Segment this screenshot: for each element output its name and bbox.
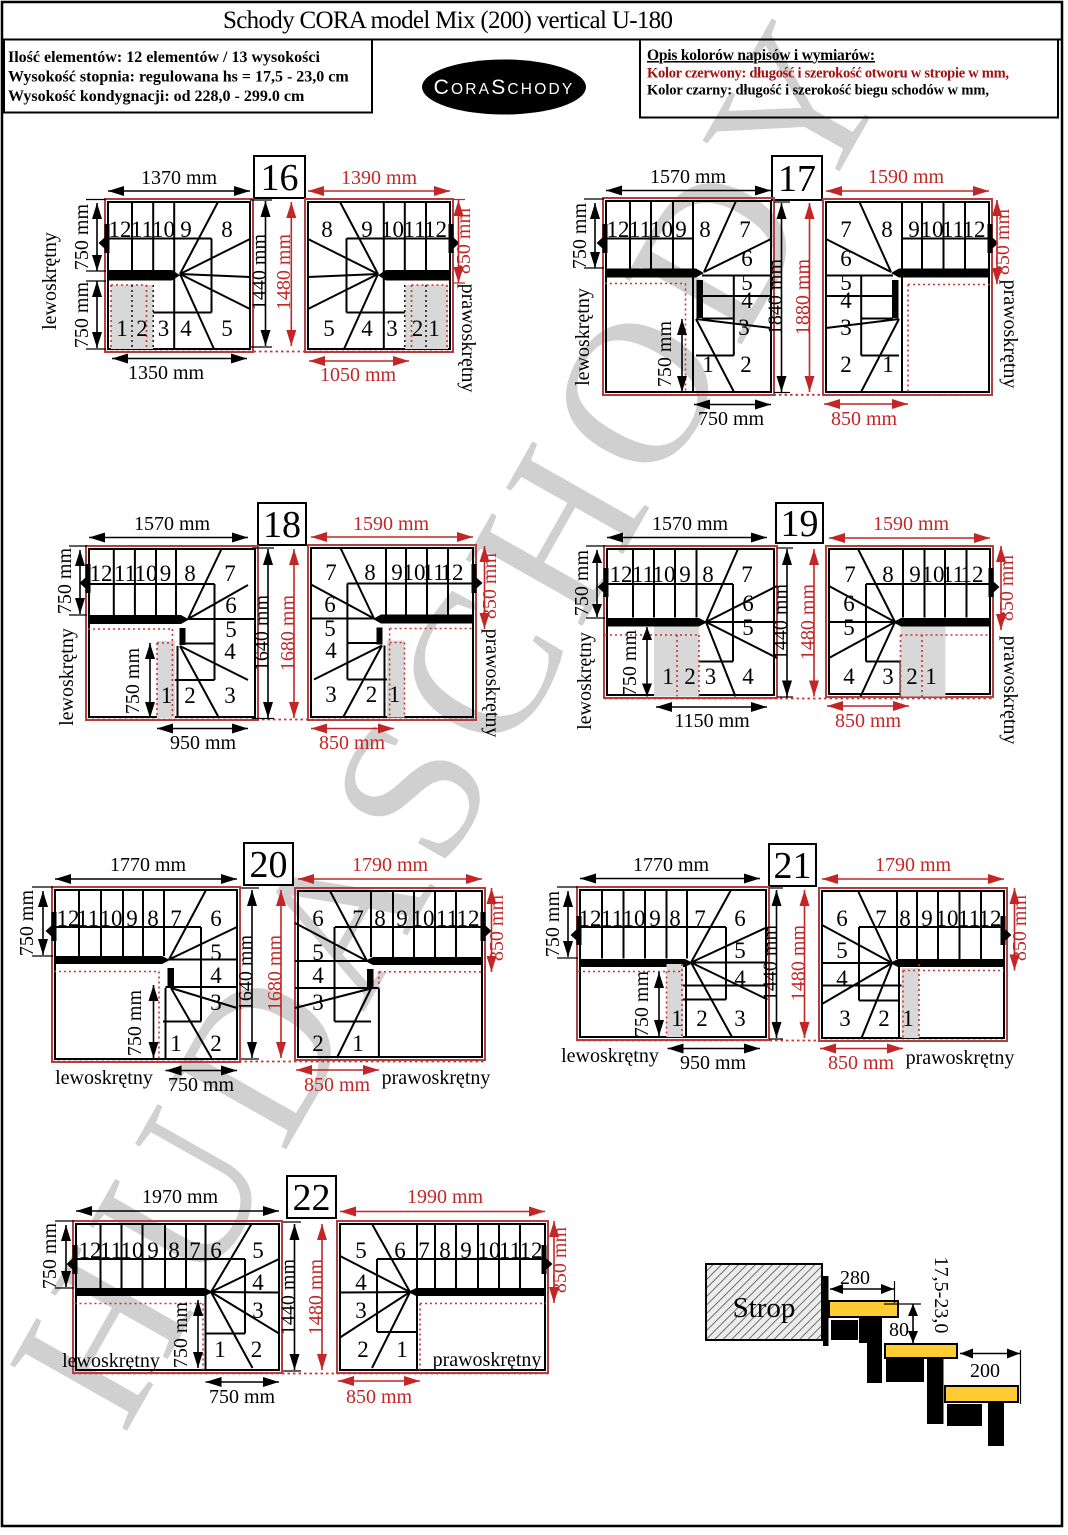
svg-text:8: 8 [168,1238,180,1263]
svg-text:8: 8 [364,560,376,585]
svg-text:2: 2 [740,352,752,377]
svg-text:lewoskrętny: lewoskrętny [56,628,78,726]
svg-text:1570 mm: 1570 mm [134,513,211,535]
svg-text:12: 12 [90,561,113,586]
svg-text:750 mm: 750 mm [170,1302,192,1369]
svg-text:12: 12 [424,217,447,242]
svg-text:1570 mm: 1570 mm [652,513,729,535]
svg-text:7: 7 [352,906,364,931]
svg-text:750 mm: 750 mm [631,971,653,1038]
svg-text:1790 mm: 1790 mm [352,854,429,876]
svg-text:11: 11 [958,906,980,931]
svg-text:750 mm: 750 mm [71,282,93,349]
svg-text:9: 9 [180,217,192,242]
svg-text:11: 11 [632,562,654,587]
svg-text:4: 4 [180,316,192,341]
svg-text:6: 6 [734,906,746,931]
svg-text:9: 9 [921,906,933,931]
svg-text:4: 4 [224,639,236,664]
svg-text:5: 5 [843,615,855,640]
svg-text:10: 10 [100,906,123,931]
svg-text:2: 2 [184,683,196,708]
svg-text:11: 11 [629,217,651,242]
svg-text:11: 11 [77,906,99,931]
svg-text:8: 8 [699,217,711,242]
svg-text:8: 8 [147,906,159,931]
svg-text:3: 3 [882,664,894,689]
svg-text:prawoskrętny: prawoskrętny [906,1047,1015,1069]
svg-text:2: 2 [906,664,918,689]
svg-text:1: 1 [925,664,937,689]
svg-text:1440 mm: 1440 mm [278,1259,300,1336]
svg-text:7: 7 [844,562,856,587]
svg-text:1390 mm: 1390 mm [341,167,418,189]
svg-text:6: 6 [742,591,754,616]
svg-text:7: 7 [224,561,236,586]
svg-text:20: 20 [250,844,288,886]
svg-text:2: 2 [840,352,852,377]
svg-text:5: 5 [210,940,222,965]
svg-text:9: 9 [391,560,403,585]
svg-text:9: 9 [649,906,661,931]
svg-text:850 mm: 850 mm [486,895,508,962]
svg-text:17,5-23,0: 17,5-23,0 [930,1257,952,1334]
svg-text:6: 6 [843,591,855,616]
svg-text:1880 mm: 1880 mm [792,259,814,336]
svg-text:1: 1 [662,664,674,689]
svg-text:750 mm: 750 mm [698,408,765,430]
svg-text:10: 10 [412,906,435,931]
svg-text:7: 7 [170,906,182,931]
svg-text:12: 12 [79,1238,102,1263]
svg-text:12: 12 [441,560,464,585]
svg-text:8: 8 [321,217,333,242]
svg-text:11: 11 [436,906,458,931]
svg-text:1370 mm: 1370 mm [141,167,218,189]
svg-text:1680 mm: 1680 mm [264,935,286,1012]
svg-text:850 mm: 850 mm [549,1227,571,1294]
svg-text:750 mm: 750 mm [54,548,76,615]
svg-text:1640 mm: 1640 mm [235,935,257,1012]
svg-text:1050 mm: 1050 mm [320,364,397,386]
svg-text:prawoskrętny: prawoskrętny [999,280,1021,389]
svg-text:10: 10 [936,906,959,931]
svg-text:22: 22 [293,1177,331,1219]
svg-text:11: 11 [942,217,964,242]
svg-text:12: 12 [607,217,630,242]
svg-text:prawoskrętny: prawoskrętny [433,1349,542,1371]
svg-text:750 mm: 750 mm [542,891,564,958]
svg-text:1350 mm: 1350 mm [128,362,205,384]
svg-text:12: 12 [610,562,633,587]
svg-text:3: 3 [840,315,852,340]
svg-text:750 mm: 750 mm [39,1223,61,1290]
svg-text:18: 18 [263,504,301,546]
svg-text:1: 1 [214,1337,226,1362]
svg-text:10: 10 [478,1238,501,1263]
svg-text:750 mm: 750 mm [71,204,93,271]
svg-text:9: 9 [160,561,172,586]
svg-text:3: 3 [210,990,222,1015]
svg-text:6: 6 [210,1238,222,1263]
svg-text:1990 mm: 1990 mm [407,1186,484,1208]
svg-text:prawoskrętny: prawoskrętny [382,1067,491,1089]
svg-text:1770 mm: 1770 mm [633,854,710,876]
svg-text:prawoskrętny: prawoskrętny [999,636,1021,745]
svg-text:3: 3 [705,664,717,689]
svg-text:1480 mm: 1480 mm [305,1259,327,1336]
svg-text:1770 mm: 1770 mm [110,854,187,876]
svg-text:9: 9 [396,906,408,931]
svg-text:5: 5 [734,938,746,963]
svg-text:2: 2 [357,1337,369,1362]
svg-text:5: 5 [312,940,324,965]
svg-text:7: 7 [739,217,751,242]
svg-text:2: 2 [210,1031,222,1056]
svg-text:19: 19 [781,503,819,545]
svg-text:8: 8 [899,906,911,931]
svg-text:9: 9 [147,1238,159,1263]
svg-text:10: 10 [653,562,676,587]
svg-text:11: 11 [403,217,425,242]
svg-text:2: 2 [251,1337,263,1362]
svg-text:3: 3 [734,1006,746,1031]
svg-text:1970 mm: 1970 mm [142,1186,219,1208]
svg-text:750 mm: 750 mm [209,1386,276,1408]
svg-text:1640 mm: 1640 mm [251,595,273,672]
svg-text:4: 4 [252,1270,264,1295]
svg-text:850 mm: 850 mm [835,710,902,732]
svg-text:10: 10 [152,217,175,242]
svg-text:1480 mm: 1480 mm [273,234,295,311]
svg-text:750 mm: 750 mm [16,890,38,957]
svg-text:7: 7 [694,906,706,931]
svg-text:8: 8 [439,1238,451,1263]
svg-text:6: 6 [312,906,324,931]
svg-text:11: 11 [131,217,153,242]
svg-text:3: 3 [355,1298,367,1323]
svg-text:1: 1 [161,683,173,708]
svg-text:8: 8 [881,217,893,242]
svg-text:4: 4 [734,966,746,991]
svg-text:4: 4 [843,664,855,689]
svg-text:4: 4 [741,288,753,313]
svg-text:10: 10 [135,561,158,586]
svg-text:850 mm: 850 mm [1009,895,1031,962]
svg-text:12: 12 [579,906,602,931]
svg-text:2: 2 [312,1031,324,1056]
svg-text:lewoskrętny: lewoskrętny [574,632,596,730]
svg-text:6: 6 [225,593,237,618]
svg-text:1: 1 [882,352,894,377]
svg-text:1: 1 [428,316,440,341]
svg-text:1590 mm: 1590 mm [353,513,430,535]
svg-text:9: 9 [460,1238,472,1263]
svg-text:280: 280 [840,1267,870,1289]
svg-text:1840 mm: 1840 mm [765,259,787,336]
svg-text:80: 80 [889,1319,909,1341]
svg-text:6: 6 [741,246,753,271]
svg-text:1: 1 [671,1006,683,1031]
svg-text:750 mm: 750 mm [619,630,641,697]
svg-text:1: 1 [396,1337,408,1362]
svg-text:1150 mm: 1150 mm [674,710,750,732]
svg-text:750 mm: 750 mm [654,321,676,388]
svg-text:5: 5 [221,316,233,341]
svg-text:prawoskrętny: prawoskrętny [481,629,503,738]
svg-text:9: 9 [909,562,921,587]
svg-text:1: 1 [902,1006,914,1031]
svg-text:lewoskrętny: lewoskrętny [39,232,61,330]
svg-text:3: 3 [738,315,750,340]
svg-text:6: 6 [210,906,222,931]
svg-text:11: 11 [114,561,136,586]
svg-text:8: 8 [221,217,233,242]
svg-text:3: 3 [252,1298,264,1323]
svg-text:Kolor czarny: długość i szerok: Kolor czarny: długość i szerokość biegu … [647,83,989,99]
svg-text:1: 1 [170,1031,182,1056]
svg-text:850 mm: 850 mm [319,732,386,754]
svg-text:2: 2 [684,664,696,689]
svg-text:16: 16 [261,157,299,199]
svg-text:6: 6 [324,592,336,617]
svg-text:9: 9 [361,217,373,242]
svg-text:10: 10 [381,217,404,242]
svg-text:950 mm: 950 mm [170,732,237,754]
svg-text:5: 5 [355,1238,367,1263]
svg-text:9: 9 [675,217,687,242]
svg-text:21: 21 [774,845,812,887]
svg-text:1: 1 [352,1031,364,1056]
svg-text:850 mm: 850 mm [479,553,501,620]
svg-text:200: 200 [970,1360,1000,1382]
svg-text:750 mm: 750 mm [122,648,144,715]
svg-text:1590 mm: 1590 mm [873,513,950,535]
svg-text:10: 10 [121,1238,144,1263]
svg-text:9: 9 [679,562,691,587]
svg-text:4: 4 [742,664,754,689]
svg-text:12: 12 [961,562,984,587]
svg-text:4: 4 [355,1270,367,1295]
svg-text:12: 12 [457,906,480,931]
svg-text:lewoskrętny: lewoskrętny [561,1045,659,1067]
svg-text:3: 3 [224,683,236,708]
svg-text:12: 12 [520,1238,543,1263]
svg-text:850 mm: 850 mm [304,1074,371,1096]
svg-text:11: 11 [601,906,623,931]
svg-text:8: 8 [669,906,681,931]
svg-text:11: 11 [100,1238,122,1263]
svg-text:7: 7 [741,562,753,587]
svg-text:Opis kolorów napisów i wymiaró: Opis kolorów napisów i wymiarów: [647,47,875,64]
svg-text:1480 mm: 1480 mm [788,925,810,1002]
svg-text:2: 2 [366,682,378,707]
svg-text:12: 12 [979,906,1002,931]
svg-text:12: 12 [109,217,132,242]
svg-text:9: 9 [126,906,138,931]
svg-text:1480 mm: 1480 mm [797,584,819,661]
svg-text:4: 4 [840,288,852,313]
svg-text:2: 2 [136,316,148,341]
svg-text:9: 9 [908,217,920,242]
svg-text:Wysokość kondygnacji: od 228,0: Wysokość kondygnacji: od 228,0 - 299.0 c… [8,88,305,105]
svg-text:7: 7 [189,1238,201,1263]
svg-text:1: 1 [116,316,128,341]
svg-text:lewoskrętny: lewoskrętny [62,1350,160,1372]
svg-text:2: 2 [878,1006,890,1031]
svg-text:1: 1 [702,352,714,377]
svg-text:11: 11 [499,1238,521,1263]
svg-text:lewoskrętny: lewoskrętny [55,1067,153,1089]
svg-text:850 mm: 850 mm [346,1386,413,1408]
svg-text:Wysokość stopnia: regulowana: Wysokość stopnia: regulowana hs = 17,5 -… [8,69,349,86]
svg-text:17: 17 [778,158,816,200]
svg-text:1590 mm: 1590 mm [868,166,945,188]
svg-text:7: 7 [418,1238,430,1263]
svg-text:prawoskrętny: prawoskrętny [457,284,479,393]
svg-text:4: 4 [325,638,337,663]
svg-text:850 mm: 850 mm [828,1052,895,1074]
svg-text:750 mm: 750 mm [571,550,593,617]
svg-text:2: 2 [696,1006,708,1031]
svg-text:10: 10 [623,906,646,931]
svg-text:Ilość elementów: 12 elementów: Ilość elementów: 12 elementów / 13 wysok… [8,49,321,66]
svg-text:8: 8 [702,562,714,587]
svg-text:4: 4 [210,963,222,988]
svg-text:3: 3 [325,682,337,707]
svg-text:8: 8 [882,562,894,587]
svg-text:4: 4 [361,316,373,341]
svg-text:3: 3 [839,1006,851,1031]
svg-text:6: 6 [394,1238,406,1263]
svg-text:850 mm: 850 mm [453,208,475,275]
svg-text:Schody CORA model Mix (200) ve: Schody CORA model Mix (200) vertical U-1… [223,7,673,34]
svg-text:1: 1 [389,682,401,707]
svg-text:lewoskrętny: lewoskrętny [572,288,594,386]
svg-text:1790 mm: 1790 mm [875,854,952,876]
svg-text:850 mm: 850 mm [996,555,1018,622]
svg-text:10: 10 [650,217,673,242]
svg-text:4: 4 [836,966,848,991]
svg-text:7: 7 [840,217,852,242]
svg-text:6: 6 [840,246,852,271]
svg-text:7: 7 [875,906,887,931]
svg-text:Strop: Strop [733,1292,796,1324]
svg-text:6: 6 [836,906,848,931]
svg-text:750 mm: 750 mm [124,990,146,1057]
svg-text:5: 5 [836,938,848,963]
svg-text:10: 10 [921,217,944,242]
svg-text:2: 2 [412,316,424,341]
svg-text:8: 8 [374,906,386,931]
svg-text:7: 7 [325,560,337,585]
svg-text:12: 12 [963,217,986,242]
svg-text:850 mm: 850 mm [992,209,1014,276]
svg-text:1680 mm: 1680 mm [277,595,299,672]
svg-text:1440 mm: 1440 mm [249,234,271,311]
svg-text:950 mm: 950 mm [680,1052,747,1074]
svg-text:5: 5 [252,1238,264,1263]
svg-text:750 mm: 750 mm [168,1074,235,1096]
svg-text:3: 3 [312,990,324,1015]
svg-text:3: 3 [158,316,170,341]
svg-text:1440 mm: 1440 mm [760,925,782,1002]
svg-text:5: 5 [323,316,335,341]
svg-text:Kolor czerwony: długość i szer: Kolor czerwony: długość i szerokość otwo… [647,66,1009,82]
svg-text:4: 4 [312,963,324,988]
svg-text:5: 5 [742,615,754,640]
svg-text:850 mm: 850 mm [831,408,898,430]
svg-text:1440 mm: 1440 mm [770,584,792,661]
svg-text:8: 8 [184,561,196,586]
svg-text:3: 3 [386,316,398,341]
svg-text:1570 mm: 1570 mm [650,166,727,188]
svg-text:750 mm: 750 mm [569,203,591,270]
